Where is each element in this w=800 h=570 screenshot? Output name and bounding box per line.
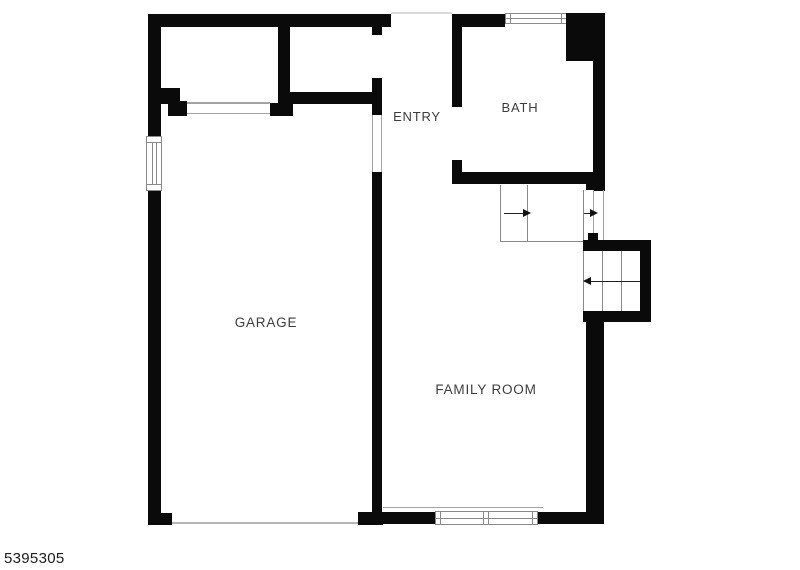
family-room-label: FAMILY ROOM (404, 382, 568, 397)
stair-run-bottom-edge (500, 241, 584, 242)
closet-left-step-wall-foot (168, 101, 187, 116)
garage-door-jamb-line (372, 115, 373, 172)
window-mullion (510, 14, 511, 23)
family-room-wall-inner-line (383, 507, 543, 508)
window-pane-line (156, 142, 157, 185)
window-pane-line (436, 518, 537, 519)
stair-down-arrow-icon (583, 277, 591, 285)
window-mullion (147, 184, 161, 185)
window-pane-line (506, 18, 566, 19)
window-mullion (561, 14, 562, 23)
closet-opening-right-jamb (270, 103, 293, 116)
closet-opening-line (187, 102, 270, 104)
listing-id: 5395305 (4, 550, 65, 567)
left-exterior-wall-upper (148, 14, 161, 137)
window-pane-line (152, 142, 153, 185)
family-room-right-wall (586, 311, 604, 524)
garage-door-opening-line (172, 522, 358, 524)
floor-plan: GARAGE ENTRY BATH FAMILY ROOM 5395305 (0, 0, 800, 570)
garage-left-window-icon (146, 136, 162, 191)
stair-bumpout-right-wall (640, 240, 651, 322)
family-room-bottom-window-icon (435, 511, 538, 525)
stair-passage-edge-line (603, 190, 604, 240)
bath-top-wall (452, 14, 505, 27)
closet-opening-line (187, 113, 270, 115)
stair-run-right-edge (583, 190, 584, 242)
garage-label: GARAGE (196, 315, 336, 330)
top-exterior-wall (148, 14, 391, 27)
stair-arrow-shaft (504, 213, 525, 214)
top-right-corner-block (566, 13, 605, 61)
bath-top-window-icon (505, 13, 567, 24)
stair-up-arrow-icon (523, 209, 531, 217)
window-mullion (147, 142, 161, 143)
stair-landing-arrow-icon (590, 209, 598, 217)
stair-arrow-shaft (591, 281, 640, 282)
bath-bottom-wall (452, 172, 588, 184)
left-exterior-wall-lower (148, 191, 161, 525)
bath-bottom-right-corner (586, 172, 605, 190)
bottom-left-wall-stub (160, 513, 172, 525)
front-door-opening-line (391, 12, 452, 14)
garage-divider-wall-top-stub (372, 27, 382, 35)
stair-run-left-edge (500, 185, 501, 242)
closet-partition-wall (278, 27, 290, 93)
bath-left-wall-upper (452, 14, 462, 107)
bath-label: BATH (478, 100, 562, 115)
entry-label: ENTRY (389, 109, 445, 124)
garage-door-jamb-line (381, 115, 382, 172)
garage-divider-wall-main (372, 172, 382, 525)
